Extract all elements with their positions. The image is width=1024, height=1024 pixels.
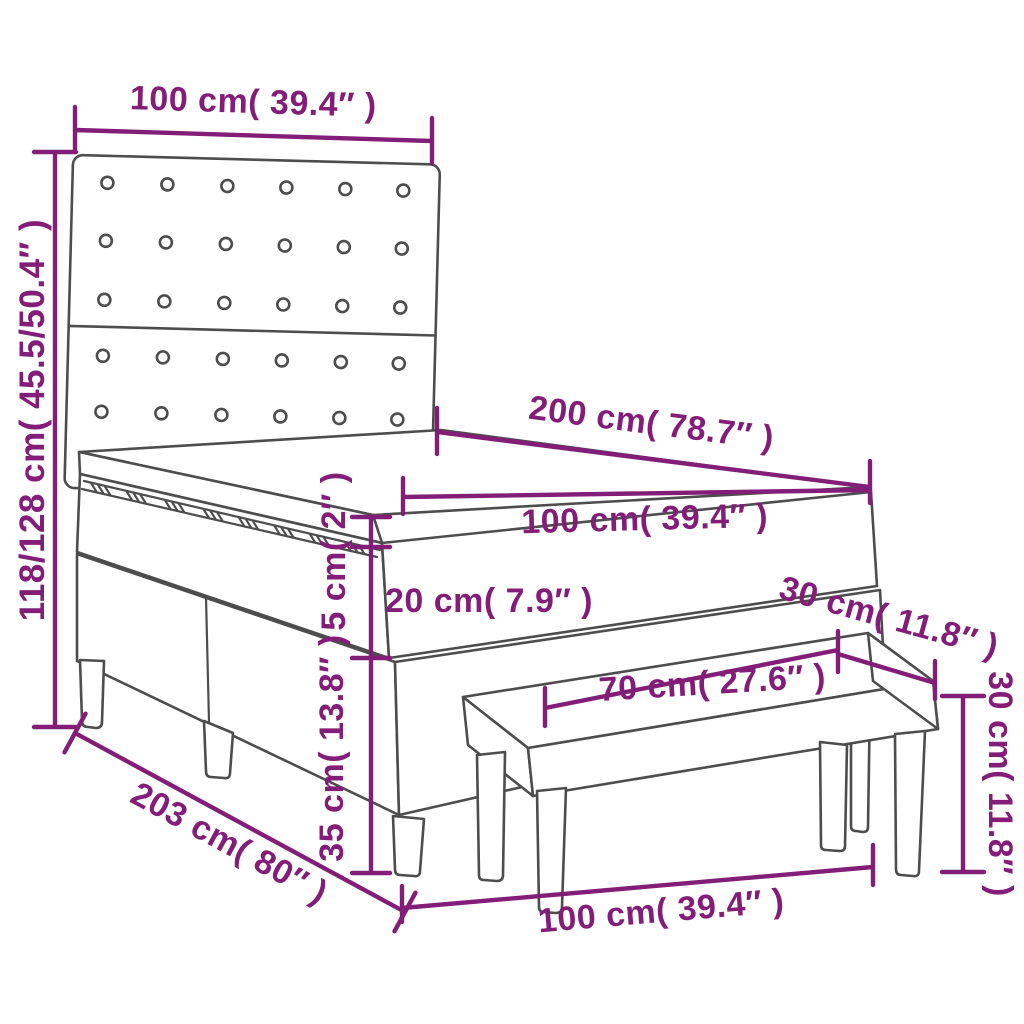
bench-leg-back-left (477, 752, 505, 881)
label-headboard-width: 100 cm( 39.4″ ) (129, 79, 377, 125)
diagram-canvas: 100 cm( 39.4″ ) 118/128 cm( 45.5/50.4″ )… (0, 0, 1024, 1024)
label-bench-length: 100 cm( 39.4″ ) (537, 882, 786, 941)
bed-leg-front-corner (393, 816, 424, 876)
bench-leg-back-right (820, 742, 847, 851)
dimension-diagram: 100 cm( 39.4″ ) 118/128 cm( 45.5/50.4″ )… (0, 0, 1024, 1024)
dim-line-bench-height (942, 696, 984, 872)
label-overall-height: 118/128 cm( 45.5/50.4″ ) (13, 219, 52, 621)
label-topper-thickness: 5 cm( 2″ ) (315, 471, 353, 630)
label-mattress-thickness: 20 cm( 7.9″ ) (385, 582, 593, 620)
label-overall-length: 203 cm( 80″ ) (125, 775, 334, 912)
label-base-height: 35 cm( 13.8″ ) (313, 634, 351, 861)
label-mattress-width: 100 cm( 39.4″ ) (521, 497, 769, 541)
bench-leg-front-right (895, 731, 925, 876)
label-bench-height: 30 cm( 11.8″ ) (981, 671, 1019, 897)
